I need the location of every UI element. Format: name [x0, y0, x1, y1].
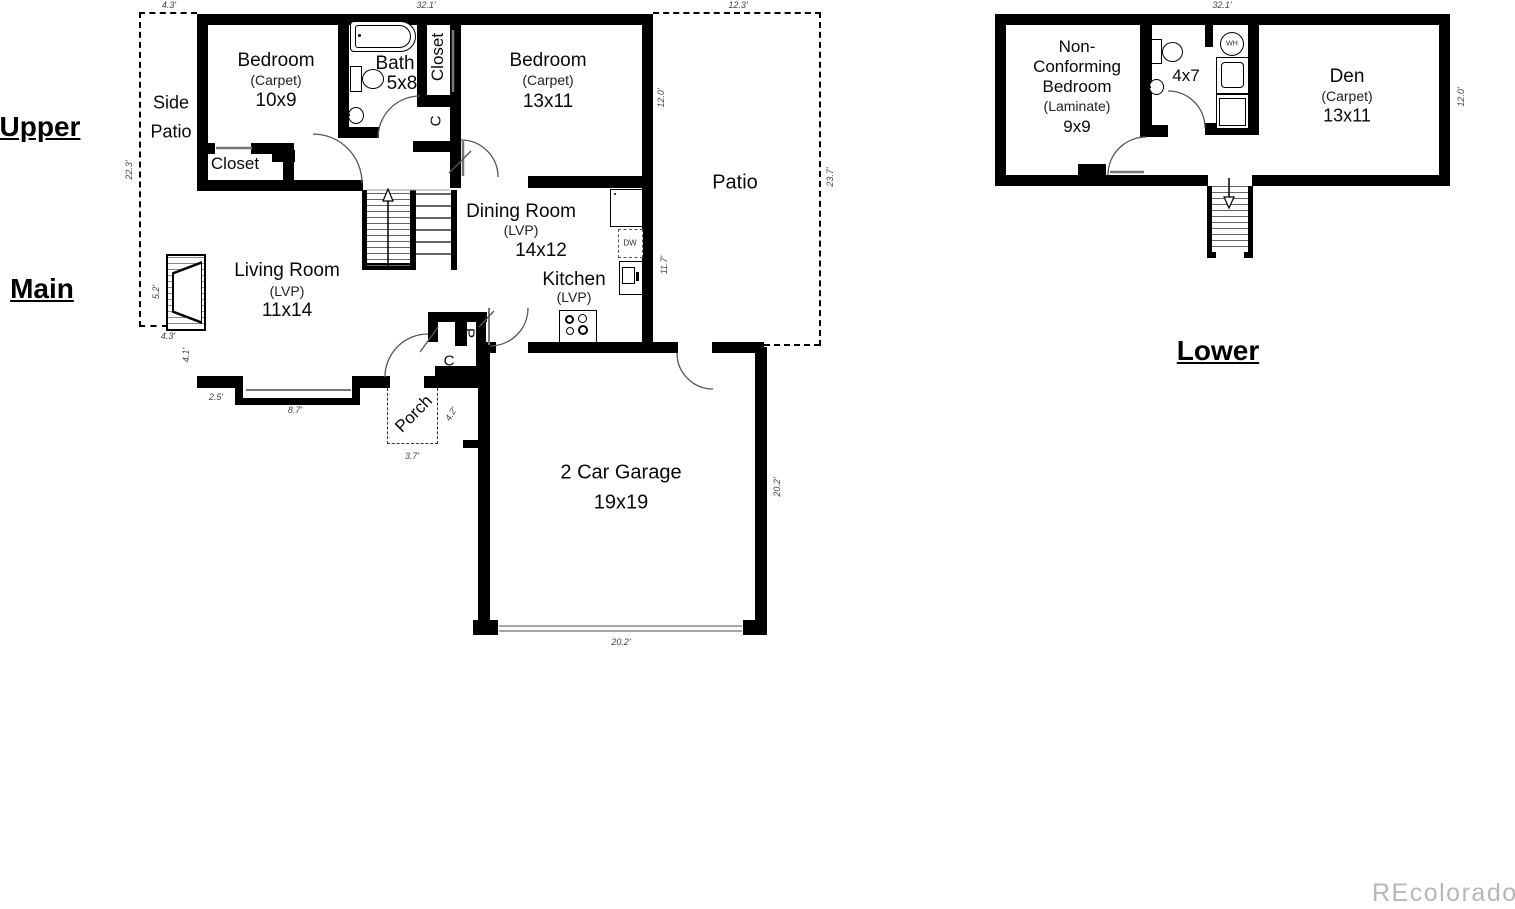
kitchen-finish: (LVP) [557, 289, 592, 305]
porch-label: Porch [391, 391, 437, 437]
coat-closet-label: C [444, 353, 455, 370]
dim-main-top: 32.1' [416, 0, 435, 10]
stove-burner [578, 314, 587, 323]
dim-lower-top: 32.1' [1212, 0, 1231, 10]
washer-door [1221, 62, 1244, 88]
garage-size: 19x19 [594, 492, 649, 515]
door-arc [1108, 137, 1146, 175]
bath-size: 5x8 [387, 73, 418, 95]
wall [1148, 125, 1168, 137]
side-patio-boundary [139, 12, 197, 14]
wall [450, 14, 461, 188]
stairs-up [367, 193, 410, 266]
refrigerator-dot [614, 193, 616, 195]
section-label-main: Main [10, 273, 74, 305]
dim-porch-right: 4.2' [443, 405, 459, 422]
dim-bedroom2-right: 12.0' [656, 88, 666, 107]
wall [197, 143, 215, 154]
front-door-arc [385, 334, 428, 377]
side-patio-boundary [139, 325, 168, 327]
dining-room-label: Dining Room [466, 201, 576, 223]
stairs-lower [1212, 186, 1248, 252]
bathtub-inner [355, 25, 411, 48]
dining-room-finish: (LVP) [504, 222, 539, 238]
toilet-bowl [1162, 42, 1183, 62]
garage-label: 2 Car Garage [560, 462, 681, 485]
wall [528, 176, 653, 188]
kitchen-faucet [636, 272, 639, 281]
wall [642, 188, 653, 352]
bay-window-wall [235, 376, 243, 405]
kitchen-sink-basin [622, 267, 635, 284]
door-arc [313, 134, 362, 183]
dishwasher-label: DW [623, 239, 636, 248]
bath-sink [348, 107, 364, 124]
side-patio-label-1: Side [153, 93, 189, 114]
bedroom2-label: Bedroom [509, 50, 586, 72]
hall-closet-c-label: C [428, 116, 445, 127]
dim-side-patio-left: 22.3' [124, 160, 134, 179]
patio-boundary [653, 12, 821, 14]
door-arc [1168, 91, 1205, 128]
wall [417, 14, 427, 107]
nc-bedroom-finish: (Laminate) [1044, 98, 1111, 114]
porch-boundary [437, 388, 438, 444]
dim-garage-right: 20.2' [772, 477, 782, 496]
stair-rail [451, 190, 457, 270]
bedroom1-closet-label: Closet [211, 154, 259, 174]
dim-kitchen-right: 11.7' [659, 256, 669, 275]
tub-faucet [358, 34, 361, 37]
sink-faucet [1147, 86, 1151, 88]
stairs-down [416, 193, 451, 263]
porch-boundary [387, 388, 388, 444]
porch-boundary [387, 443, 438, 444]
nc-bedroom-label-2: Conforming [1033, 57, 1121, 77]
wall [995, 14, 1006, 186]
section-label-lower: Lower [1177, 335, 1259, 367]
dryer-door [1219, 98, 1246, 126]
toilet-tank [350, 66, 362, 92]
dim-den-right: 12.0' [1456, 87, 1466, 106]
nc-bedroom-label-3: Bedroom [1043, 77, 1112, 97]
patio-door-arc [677, 353, 713, 389]
bedroom2-size: 13x11 [523, 91, 573, 113]
den-finish: (Carpet) [1321, 88, 1372, 104]
dim-below-side-patio: 4.3' [161, 331, 175, 341]
patio-boundary [764, 344, 820, 346]
wall [1439, 14, 1450, 186]
garage-door-arc [490, 308, 528, 346]
door-arc [461, 140, 498, 177]
side-patio-label-2: Patio [150, 122, 191, 143]
wall [476, 320, 486, 376]
dim-patio-right: 23.7' [825, 167, 835, 186]
wall [642, 14, 653, 188]
kitchen-label: Kitchen [542, 269, 605, 291]
living-room-label: Living Room [234, 260, 340, 282]
bath-label: Bath [375, 53, 414, 75]
nc-bedroom-size: 9x9 [1063, 117, 1090, 137]
wall [743, 620, 767, 635]
wall [338, 14, 349, 138]
wall [995, 175, 1208, 186]
dim-patio-top: 12.3' [728, 0, 747, 10]
recolorado-watermark: REcolorado [1372, 879, 1515, 908]
stair-rail [1244, 252, 1253, 258]
dim-bay-left: 2.5' [209, 392, 223, 402]
patio-boundary [819, 12, 821, 346]
floor-plan-canvas: Upper Main Lower Bedroom (Carpet) 10x9 B… [0, 0, 1515, 909]
wall [473, 620, 498, 635]
stair-rail [1207, 252, 1216, 258]
dining-room-size: 14x12 [515, 240, 567, 262]
wall [1248, 25, 1259, 135]
bath-sink [1149, 79, 1164, 95]
sink-faucet [346, 114, 350, 116]
dim-garage-bottom: 20.2' [611, 637, 630, 647]
wall [1078, 164, 1106, 176]
living-room-size: 11x14 [262, 300, 312, 322]
hall-closet-label: Closet [428, 33, 448, 81]
bay-window-wall [235, 398, 360, 405]
toilet-tank [1151, 39, 1162, 64]
dim-living-left: 4.1' [181, 348, 191, 362]
water-heater-label: WH [1226, 41, 1238, 48]
wall [478, 347, 490, 635]
den-label: Den [1330, 66, 1365, 88]
dim-side-patio-top: 4.3' [162, 0, 176, 10]
wall [197, 14, 208, 190]
den-size: 13x11 [1323, 106, 1371, 127]
pantry-label: P [461, 328, 478, 338]
bedroom1-label: Bedroom [237, 50, 314, 72]
dim-porch-bottom: 3.7' [405, 451, 419, 461]
wall [1205, 25, 1213, 47]
wall [755, 347, 767, 635]
wall [424, 376, 478, 388]
bedroom2-finish: (Carpet) [522, 72, 573, 88]
lower-bath-size: 4x7 [1172, 66, 1199, 86]
wall [463, 440, 479, 448]
stove-burner [566, 327, 574, 335]
wall [197, 180, 363, 191]
section-label-upper: Upper [0, 111, 80, 143]
stair-rail [1248, 186, 1253, 258]
wall [995, 14, 1450, 25]
bedroom1-finish: (Carpet) [250, 72, 301, 88]
side-patio-boundary [139, 12, 141, 327]
stove-burner [565, 315, 574, 324]
wall [338, 127, 379, 138]
wall [428, 312, 438, 342]
door-arc [378, 96, 420, 138]
wall [528, 342, 678, 353]
stove-burner [578, 325, 588, 335]
dim-bay-bottom: 8.7' [288, 405, 302, 415]
patio-label: Patio [712, 172, 758, 195]
wall [352, 376, 390, 388]
wall [1252, 175, 1450, 186]
living-room-finish: (LVP) [270, 283, 305, 299]
dim-fireplace-left: 5.2' [151, 285, 161, 299]
bedroom1-size: 10x9 [255, 90, 296, 112]
nc-bedroom-label-1: Non- [1059, 37, 1096, 57]
